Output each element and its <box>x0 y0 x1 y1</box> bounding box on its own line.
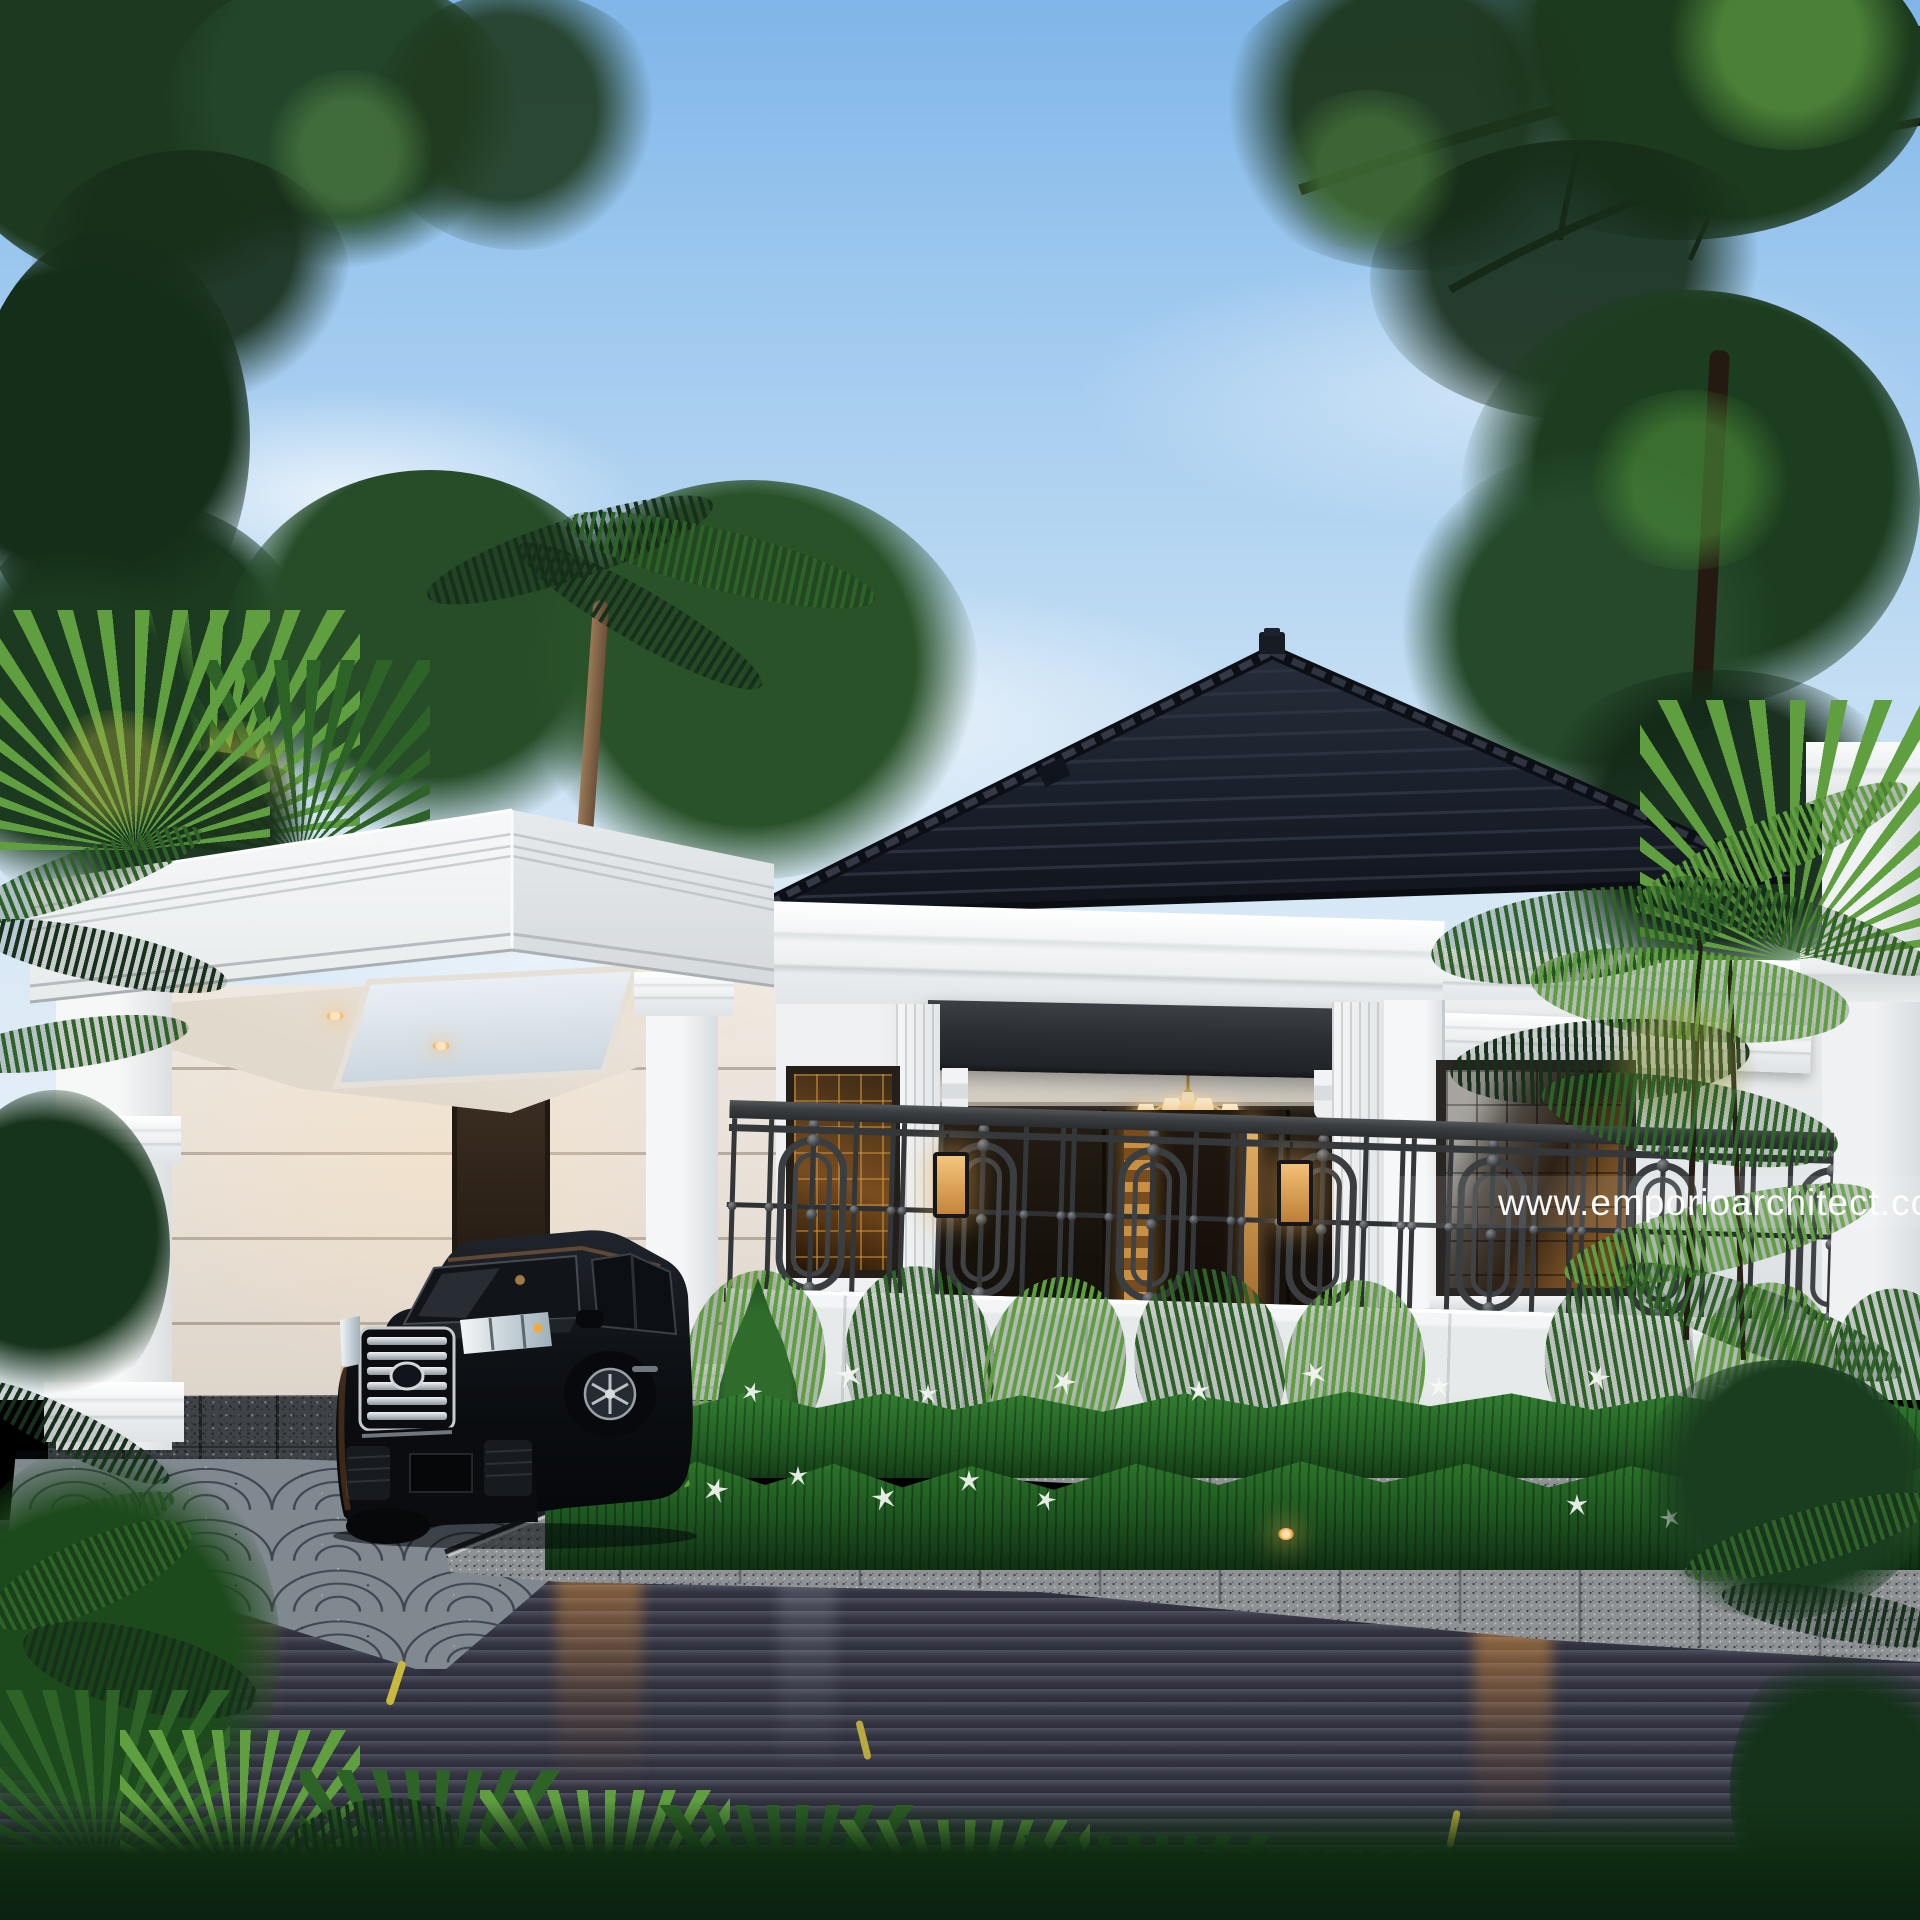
wheel-hub <box>605 1389 615 1399</box>
fog-lamp-right <box>484 1440 532 1496</box>
interior-lamp-reflection <box>515 1275 525 1285</box>
fog-lamp-left <box>346 1446 390 1500</box>
fringe-base <box>0 1800 1920 1920</box>
architectural-render: www.emporioarchitect.com <box>0 0 1920 1920</box>
wheel-front-left <box>346 1508 430 1544</box>
hanging-lantern <box>930 1134 966 1228</box>
foliage-highlight <box>260 70 440 230</box>
lantern-chain <box>1290 1142 1293 1160</box>
headlight-left <box>340 1316 360 1368</box>
grass-accent <box>855 1720 871 1761</box>
ceiling-downlight <box>432 1042 450 1050</box>
grass-accent <box>385 1660 407 1706</box>
lantern-chain <box>946 1134 949 1152</box>
palm-frond <box>0 904 233 1009</box>
car-emblem <box>391 1363 423 1389</box>
car-minivan <box>330 1216 706 1550</box>
garden-uplight <box>1278 1528 1294 1540</box>
foliage-highlight <box>1580 390 1800 570</box>
lantern-body <box>1277 1160 1313 1226</box>
watermark: www.emporioarchitect.com <box>1498 1182 1920 1224</box>
hanging-lantern <box>1274 1142 1310 1236</box>
foliage-cluster <box>1630 1360 1920 1620</box>
license-plate <box>410 1454 472 1492</box>
foreground-fringe <box>0 1600 1920 1920</box>
entrance-canopy-fascia <box>927 1000 1360 1079</box>
vegetation-left <box>0 230 300 1630</box>
door-handle <box>632 1366 658 1372</box>
palm-frond <box>0 1004 192 1085</box>
foliage-highlight <box>1270 90 1470 250</box>
foliage-backlight <box>40 710 190 830</box>
ceiling-downlight <box>326 1012 344 1020</box>
foliage-cluster <box>0 1090 170 1410</box>
lantern-body <box>933 1152 969 1218</box>
car-mirror <box>576 1310 604 1328</box>
headlight-amber-dot <box>534 1324 543 1333</box>
